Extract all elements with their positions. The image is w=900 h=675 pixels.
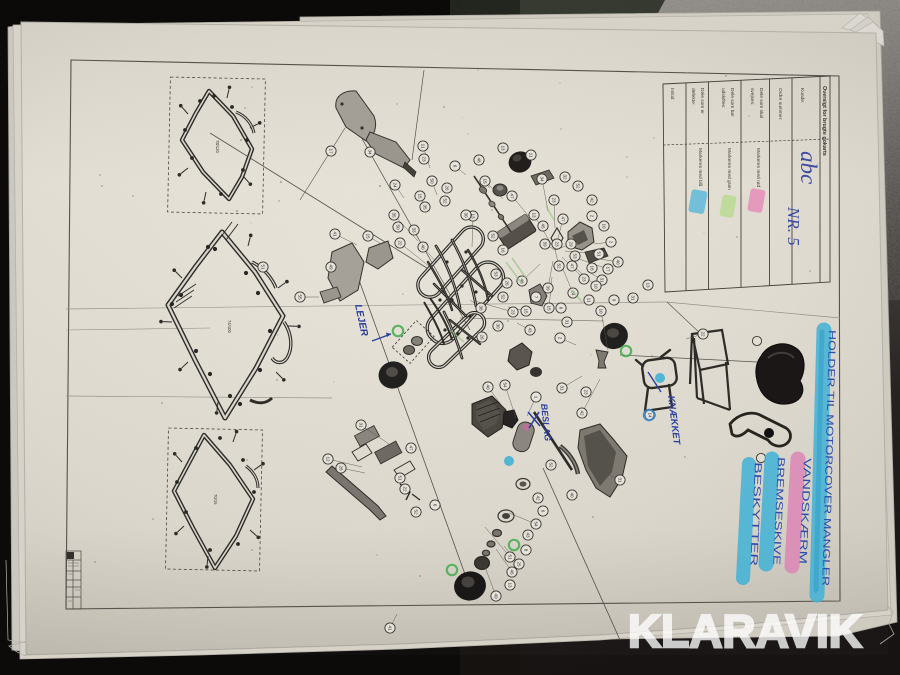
svg-text:Markeres med rød: Markeres med rød bbox=[755, 148, 761, 188]
svg-text:26: 26 bbox=[479, 334, 484, 340]
svg-text:52: 52 bbox=[413, 509, 418, 515]
svg-text:15: 15 bbox=[523, 308, 528, 314]
svg-text:2: 2 bbox=[557, 337, 562, 340]
svg-text:30: 30 bbox=[463, 212, 468, 218]
svg-text:53: 53 bbox=[572, 253, 577, 259]
svg-text:18: 18 bbox=[589, 265, 594, 271]
svg-text:svejses:: svejses: bbox=[749, 88, 755, 105]
svg-text:29: 29 bbox=[568, 241, 573, 247]
svg-text:23: 23 bbox=[583, 389, 588, 395]
svg-text:35: 35 bbox=[422, 204, 427, 210]
svg-text:52: 52 bbox=[575, 183, 580, 189]
svg-text:45: 45 bbox=[540, 223, 545, 229]
svg-text:47: 47 bbox=[569, 263, 574, 269]
svg-text:2: 2 bbox=[589, 215, 594, 218]
svg-text:30: 30 bbox=[495, 323, 500, 329]
svg-text:50: 50 bbox=[395, 224, 400, 230]
svg-text:52: 52 bbox=[442, 198, 447, 204]
svg-text:49: 49 bbox=[493, 593, 498, 599]
svg-text:78/120: 78/120 bbox=[215, 140, 220, 153]
svg-text:42: 42 bbox=[535, 495, 540, 501]
svg-text:6: 6 bbox=[540, 510, 545, 513]
svg-text:42: 42 bbox=[579, 410, 584, 416]
svg-text:6: 6 bbox=[452, 165, 457, 168]
svg-text:abc: abc bbox=[796, 151, 821, 184]
svg-text:8: 8 bbox=[523, 549, 528, 552]
svg-text:Kunde:: Kunde: bbox=[799, 88, 805, 103]
svg-text:Initial:: Initial: bbox=[669, 88, 675, 101]
svg-text:50: 50 bbox=[429, 178, 434, 184]
svg-text:31: 31 bbox=[358, 422, 363, 428]
svg-text:51: 51 bbox=[260, 264, 265, 270]
svg-text:47: 47 bbox=[408, 445, 413, 451]
svg-text:10: 10 bbox=[598, 308, 603, 314]
svg-text:48: 48 bbox=[476, 157, 481, 163]
svg-text:33: 33 bbox=[411, 227, 416, 233]
svg-text:24: 24 bbox=[392, 182, 397, 188]
svg-text:42: 42 bbox=[589, 197, 594, 203]
svg-text:41: 41 bbox=[387, 625, 392, 631]
svg-text:31: 31 bbox=[599, 277, 604, 283]
svg-text:1: 1 bbox=[533, 396, 538, 399]
svg-text:52: 52 bbox=[556, 263, 561, 269]
svg-text:10: 10 bbox=[593, 283, 598, 289]
svg-text:Dele som er: Dele som er bbox=[699, 88, 705, 114]
svg-text:39: 39 bbox=[542, 241, 547, 247]
svg-text:7: 7 bbox=[533, 296, 538, 299]
svg-text:13: 13 bbox=[470, 213, 475, 219]
svg-text:23: 23 bbox=[551, 197, 556, 203]
svg-text:13: 13 bbox=[500, 145, 505, 151]
svg-text:Dele som bør: Dele som bør bbox=[729, 88, 735, 117]
svg-text:49: 49 bbox=[328, 264, 333, 270]
svg-text:34: 34 bbox=[539, 176, 544, 182]
svg-text:52: 52 bbox=[548, 462, 553, 468]
svg-text:23: 23 bbox=[421, 156, 426, 162]
svg-text:Markeres med blå: Markeres med blå bbox=[697, 148, 704, 187]
svg-text:40: 40 bbox=[485, 384, 490, 390]
svg-text:11: 11 bbox=[528, 153, 533, 158]
svg-text:11: 11 bbox=[420, 144, 425, 149]
svg-text:udskiftes:: udskiftes: bbox=[720, 88, 726, 108]
svg-text:51: 51 bbox=[507, 554, 512, 560]
svg-text:31: 31 bbox=[617, 477, 622, 483]
svg-text:32: 32 bbox=[562, 174, 567, 180]
svg-text:NR. 5: NR. 5 bbox=[784, 206, 803, 246]
svg-text:6: 6 bbox=[558, 307, 563, 310]
svg-text:KLARAVIK: KLARAVIK bbox=[628, 605, 862, 657]
svg-text:54: 54 bbox=[502, 382, 507, 388]
svg-text:40: 40 bbox=[569, 492, 574, 498]
svg-text:17: 17 bbox=[605, 266, 610, 272]
svg-text:46: 46 bbox=[509, 569, 514, 575]
svg-text:38: 38 bbox=[478, 305, 483, 311]
svg-text:40: 40 bbox=[420, 244, 425, 250]
svg-text:13: 13 bbox=[507, 582, 512, 588]
svg-text:52: 52 bbox=[490, 233, 495, 239]
svg-text:16: 16 bbox=[500, 247, 505, 253]
svg-text:43: 43 bbox=[527, 327, 532, 333]
svg-text:22: 22 bbox=[402, 486, 407, 492]
svg-text:22: 22 bbox=[700, 331, 705, 337]
svg-text:47: 47 bbox=[509, 193, 514, 199]
svg-text:34: 34 bbox=[367, 149, 372, 155]
svg-text:31: 31 bbox=[564, 319, 569, 325]
svg-text:51: 51 bbox=[596, 251, 601, 257]
svg-text:52: 52 bbox=[500, 294, 505, 300]
svg-text:15: 15 bbox=[365, 233, 370, 239]
svg-text:Markeres med grøn: Markeres med grøn bbox=[726, 148, 732, 190]
svg-text:13: 13 bbox=[531, 212, 536, 218]
svg-text:26: 26 bbox=[504, 280, 509, 286]
svg-text:23: 23 bbox=[510, 309, 515, 315]
svg-text:26: 26 bbox=[444, 185, 449, 191]
svg-text:2: 2 bbox=[608, 241, 613, 244]
svg-text:Ordre nummer:: Ordre nummer: bbox=[777, 88, 783, 121]
svg-text:15: 15 bbox=[482, 178, 487, 184]
svg-text:28: 28 bbox=[338, 465, 343, 471]
svg-text:Dele som skal: Dele som skal bbox=[758, 88, 764, 118]
svg-text:Oversigt for brugte gokarts: Oversigt for brugte gokarts bbox=[821, 86, 827, 156]
svg-text:23: 23 bbox=[581, 276, 586, 282]
svg-text:53: 53 bbox=[493, 271, 498, 277]
svg-text:43: 43 bbox=[525, 532, 530, 538]
svg-text:39: 39 bbox=[545, 285, 550, 291]
svg-text:40: 40 bbox=[615, 259, 620, 265]
svg-text:47: 47 bbox=[560, 216, 565, 222]
svg-text:14: 14 bbox=[647, 412, 652, 418]
svg-text:41: 41 bbox=[332, 231, 337, 237]
svg-text:54: 54 bbox=[533, 521, 538, 527]
svg-text:12: 12 bbox=[325, 456, 330, 462]
svg-text:9: 9 bbox=[611, 299, 616, 302]
svg-text:15: 15 bbox=[417, 193, 422, 199]
svg-text:10: 10 bbox=[601, 223, 606, 229]
svg-text:25: 25 bbox=[516, 561, 521, 567]
svg-text:22: 22 bbox=[397, 240, 402, 246]
svg-text:11: 11 bbox=[586, 298, 591, 303]
svg-text:70/15: 70/15 bbox=[213, 494, 218, 505]
svg-text:15: 15 bbox=[546, 305, 551, 311]
svg-text:51: 51 bbox=[397, 475, 402, 481]
svg-text:13: 13 bbox=[645, 282, 650, 288]
svg-text:6: 6 bbox=[432, 504, 437, 507]
svg-text:31: 31 bbox=[559, 385, 564, 391]
svg-text:17: 17 bbox=[328, 148, 333, 154]
svg-text:55: 55 bbox=[297, 294, 302, 300]
svg-text:23: 23 bbox=[554, 241, 559, 247]
svg-text:31: 31 bbox=[630, 295, 635, 301]
svg-text:defekte:: defekte: bbox=[690, 88, 696, 105]
svg-text:35: 35 bbox=[391, 212, 396, 218]
svg-text:74/100: 74/100 bbox=[227, 320, 232, 333]
